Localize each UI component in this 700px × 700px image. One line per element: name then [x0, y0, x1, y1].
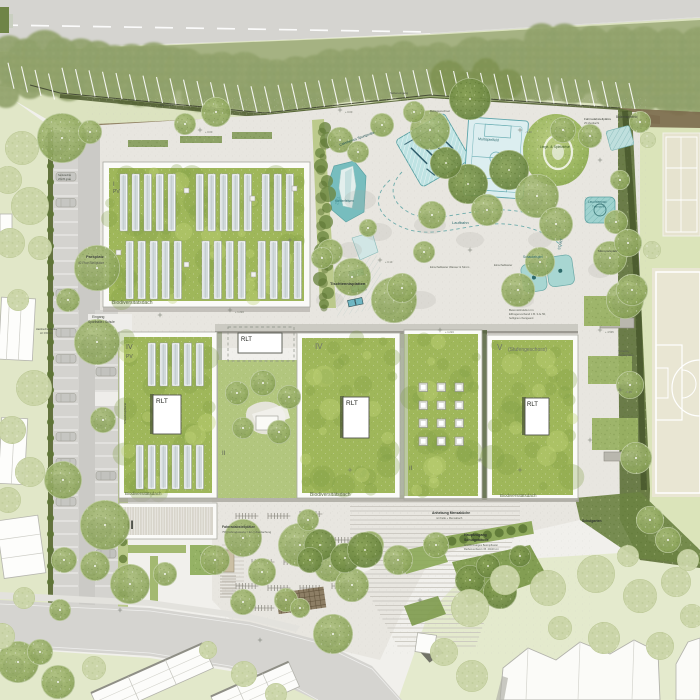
svg-text:Einschalttaster: Einschalttaster — [494, 263, 512, 267]
svg-text:Reihenverband z.B. 40x20 cm: Reihenverband z.B. 40x20 cm — [464, 547, 499, 551]
svg-text:Baumreihe: Baumreihe — [160, 103, 174, 107]
svg-text:Sporthalle / Schule: Sporthalle / Schule — [88, 320, 115, 324]
svg-text:Schwerlastpflaster: Schwerlastpflaster — [123, 403, 127, 424]
svg-text:Biodiversitätsdach: Biodiversitätsdach — [125, 491, 162, 496]
svg-text:Fahrradabstellplätze: Fahrradabstellplätze — [584, 117, 612, 121]
svg-text:Nebeneingang: Nebeneingang — [390, 91, 409, 95]
svg-text:Einschalttaster Wasser & Strom: Einschalttaster Wasser & Strom — [430, 265, 470, 269]
svg-text:V: V — [497, 343, 503, 352]
svg-text:- 0.40: - 0.40 — [525, 130, 532, 134]
svg-text:42 Pkw-Stellplätze: 42 Pkw-Stellplätze — [78, 261, 104, 265]
svg-text:Hauptzugang: Hauptzugang — [464, 533, 487, 537]
svg-text:Leuchtenpad: Leuchtenpad — [588, 200, 607, 204]
svg-text:+ 4.545: + 4.545 — [605, 330, 614, 334]
svg-text:+ 0.00: + 0.00 — [205, 130, 213, 134]
svg-text:Belagswechsel: Belagswechsel — [430, 109, 450, 113]
svg-text:Biodiversitätsdach: Biodiversitätsdach — [112, 300, 153, 306]
svg-text:Mikroparkplatz: Mikroparkplatz — [598, 249, 618, 253]
svg-text:Senkrechte: Senkrechte — [58, 173, 72, 177]
svg-text:756 Fahrradständer f.E.Ü Überd: 756 Fahrradständer f.E.Ü Überdachung — [222, 530, 272, 534]
svg-text:+ 1.224: + 1.224 — [235, 310, 244, 314]
svg-text:RLT: RLT — [156, 398, 168, 405]
svg-text:Eingang: Eingang — [92, 315, 105, 319]
svg-text:PV: PV — [113, 189, 120, 195]
svg-text:Trampolin: Trampolin — [592, 205, 606, 209]
svg-text:+ 0.00: + 0.00 — [345, 110, 353, 114]
svg-text:Schulgarten: Schulgarten — [582, 519, 602, 523]
svg-text:+ 1.224: + 1.224 — [445, 330, 454, 334]
svg-text:Parkplatz: Parkplatz — [86, 254, 104, 259]
svg-text:Biodiversitätsdach: Biodiversitätsdach — [310, 492, 351, 498]
svg-text:H= 150 cm: H= 150 cm — [40, 331, 53, 335]
svg-text:Anhebung Mensaküche: Anhebung Mensaküche — [432, 511, 470, 515]
svg-text:II: II — [222, 451, 226, 457]
svg-text:Fahrradabstellplätze: Fahrradabstellplätze — [222, 525, 255, 529]
svg-text:Schulgebäude: Schulgebäude — [464, 538, 489, 542]
svg-text:mit Kelle + Mensabach: mit Kelle + Mensabach — [436, 516, 463, 520]
svg-text:RLT: RLT — [241, 337, 252, 343]
svg-text:Laufbahn: Laufbahn — [452, 220, 469, 225]
svg-text:II: II — [409, 466, 413, 472]
svg-text:+ 0.10: + 0.10 — [385, 260, 393, 264]
svg-text:IV: IV — [126, 344, 133, 351]
svg-text:RLT: RLT — [346, 400, 358, 407]
svg-text:PV: PV — [126, 354, 133, 360]
svg-text:Großformatiges Betonpflaster: Großformatiges Betonpflaster — [464, 543, 498, 547]
svg-text:Biodiversitätsdach: Biodiversitätsdach — [500, 493, 537, 498]
svg-text:Tischtennisplatten: Tischtennisplatten — [330, 281, 366, 286]
svg-text:20x35 grau: 20x35 grau — [58, 177, 72, 181]
svg-text:RLT: RLT — [527, 402, 538, 408]
svg-text:25 überdacht: 25 überdacht — [584, 121, 599, 125]
svg-text:Hainbuchenhecke: Hainbuchenhecke — [36, 327, 57, 331]
svg-text:Liege- & Spielwiese: Liege- & Spielwiese — [540, 145, 570, 149]
svg-text:Zugangstüre: Zugangstüre — [618, 353, 634, 357]
svg-text:IV: IV — [315, 342, 323, 351]
svg-text:helligrau changeant: helligrau changeant — [509, 316, 534, 320]
svg-text:- 0.45: - 0.45 — [625, 390, 632, 394]
svg-text:Schaukelspiel: Schaukelspiel — [523, 255, 543, 259]
svg-text:(Stufengeschoss): (Stufengeschoss) — [508, 347, 547, 353]
svg-text:Bolzenspielfeld: Bolzenspielfeld — [616, 115, 638, 119]
